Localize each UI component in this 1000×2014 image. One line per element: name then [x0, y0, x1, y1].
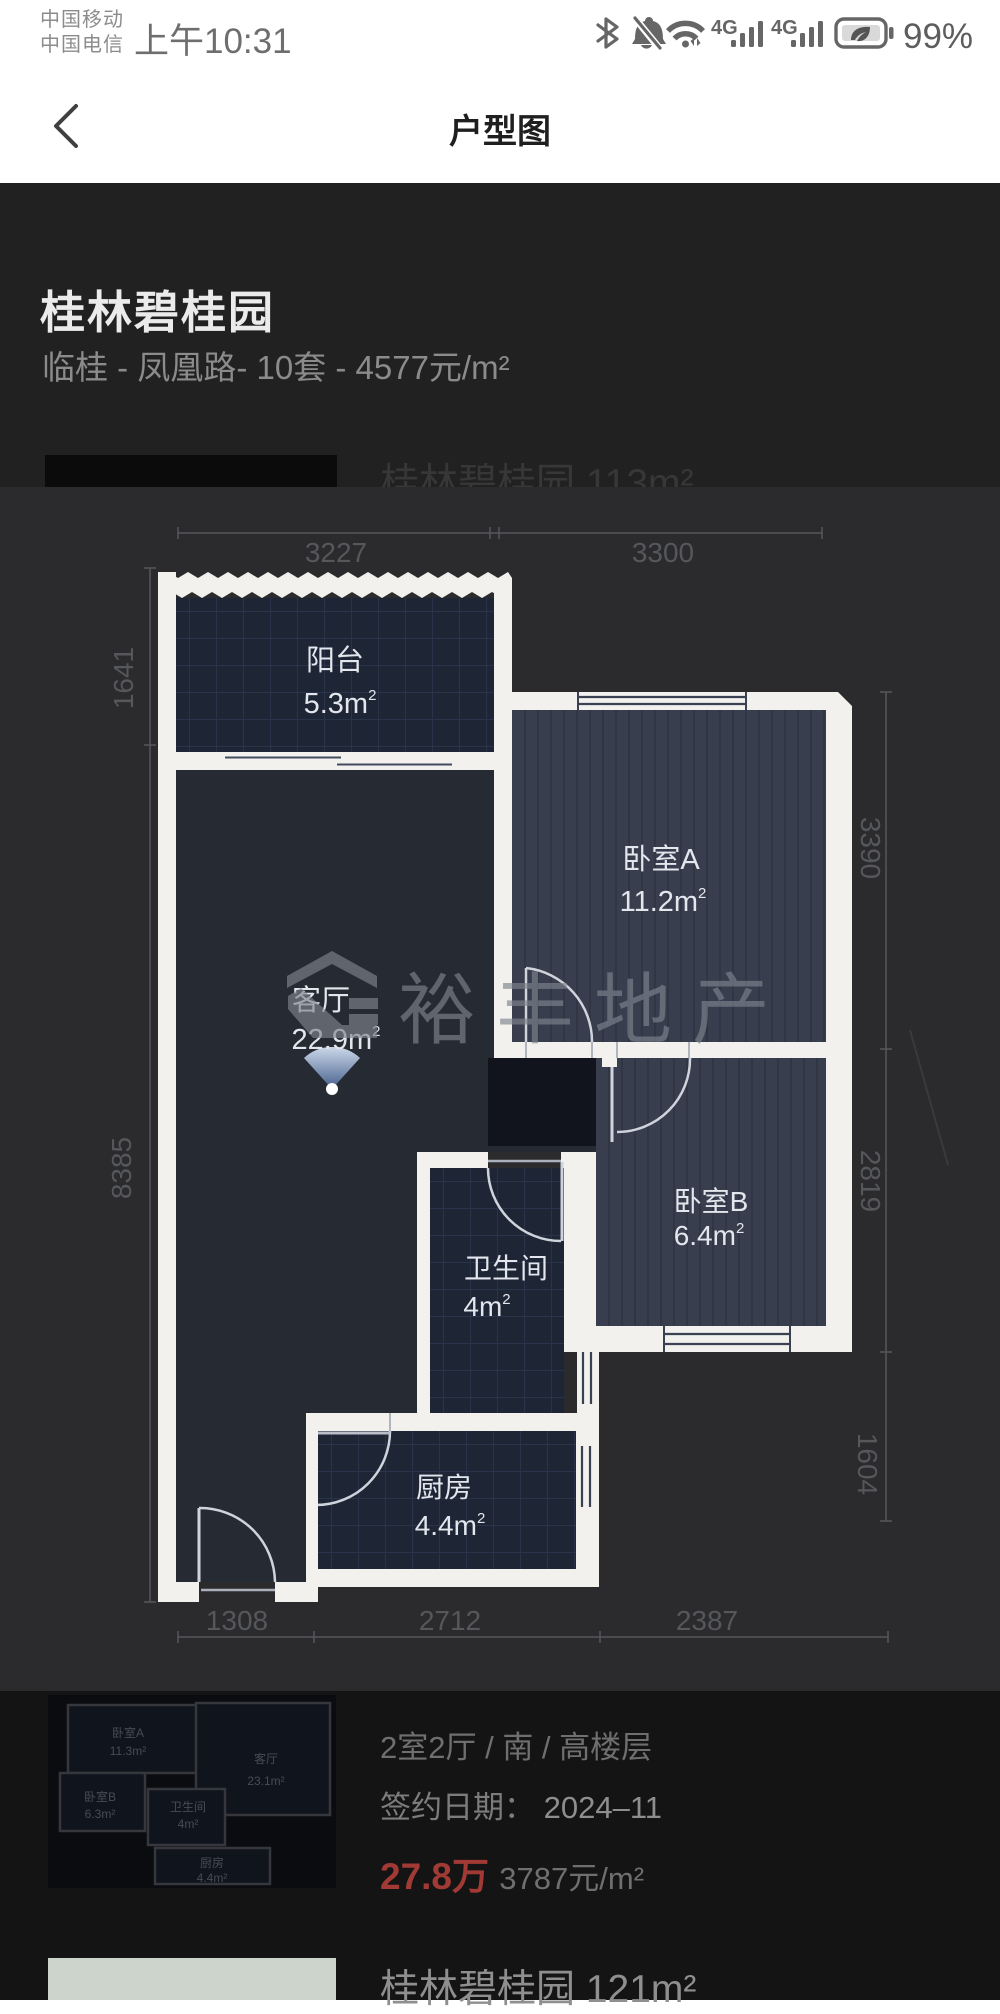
svg-text:4.4m2: 4.4m2: [415, 1510, 486, 1541]
svg-text:卧室A: 卧室A: [622, 843, 700, 876]
svg-text:裕丰地产: 裕丰地产: [398, 966, 790, 1054]
svg-text:8385: 8385: [106, 1137, 137, 1199]
svg-text:4G: 4G: [771, 17, 798, 39]
svg-text:11.2m2: 11.2m2: [620, 885, 707, 918]
svg-text:4G: 4G: [711, 17, 738, 39]
svg-text:阳台: 阳台: [306, 644, 364, 677]
svg-text:卫生间: 卫生间: [170, 1800, 206, 1814]
svg-text:6.3m²: 6.3m²: [85, 1807, 116, 1821]
svg-text:11.3m²: 11.3m²: [110, 1744, 146, 1758]
svg-text:4m²: 4m²: [178, 1817, 199, 1831]
svg-text:客厅: 客厅: [254, 1751, 278, 1766]
svg-text:卧室A: 卧室A: [112, 1725, 144, 1740]
svg-text:卫生间: 卫生间: [464, 1253, 548, 1284]
svg-text:卧室B: 卧室B: [674, 1186, 749, 1217]
svg-text:厨房: 厨房: [416, 1472, 472, 1503]
svg-text:1641: 1641: [108, 647, 139, 709]
svg-text:卧室B: 卧室B: [84, 1789, 116, 1804]
svg-text:2819: 2819: [855, 1150, 886, 1212]
svg-text:4.4m²: 4.4m²: [197, 1871, 228, 1885]
svg-text:23.1m²: 23.1m²: [247, 1774, 284, 1788]
svg-text:6.4m2: 6.4m2: [674, 1220, 745, 1251]
svg-text:3227: 3227: [305, 537, 367, 568]
svg-text:2712: 2712: [419, 1605, 481, 1636]
svg-text:5.3m2: 5.3m2: [304, 687, 377, 720]
svg-text:3300: 3300: [632, 537, 694, 568]
svg-text:1308: 1308: [206, 1605, 268, 1636]
svg-text:3390: 3390: [855, 817, 886, 879]
svg-text:1604: 1604: [852, 1433, 883, 1495]
svg-text:2387: 2387: [676, 1605, 738, 1636]
svg-text:厨房: 厨房: [200, 1855, 224, 1870]
